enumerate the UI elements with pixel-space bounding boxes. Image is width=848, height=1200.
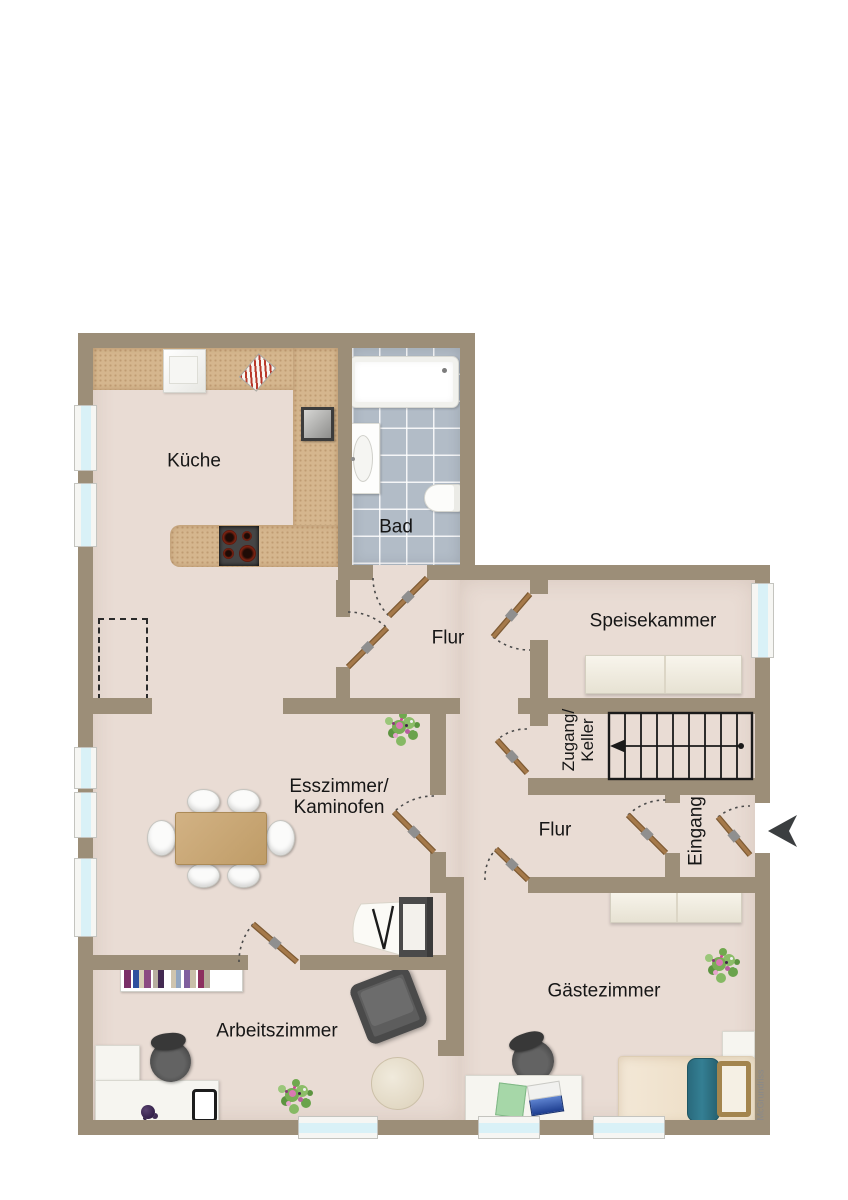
entrance-arrow-icon	[768, 815, 797, 847]
room-label-esszimmer-line2: Kaminofen	[294, 797, 385, 818]
wall	[530, 580, 548, 594]
cooktop	[219, 526, 259, 566]
wall	[93, 955, 248, 970]
window	[478, 1116, 540, 1139]
wall	[530, 712, 548, 726]
window	[751, 583, 774, 658]
wall	[78, 333, 475, 348]
room-label-gaestezimmer: Gästezimmer	[548, 981, 661, 1002]
window	[74, 792, 97, 838]
window	[74, 747, 97, 789]
floor-plan: Küche Bad Flur Speisekammer Zugang/ Kell…	[0, 0, 848, 1200]
wall	[338, 565, 373, 580]
wall	[665, 795, 680, 803]
wall	[438, 1040, 464, 1056]
room-label-esszimmer-line1: Esszimmer/	[289, 776, 388, 797]
room-label-flur-bottom: Flur	[539, 820, 572, 841]
room-label-bad: Bad	[379, 517, 413, 538]
burner	[239, 545, 256, 562]
dining-chair	[227, 789, 260, 814]
bed-pillow	[717, 1061, 751, 1117]
round-ottoman	[371, 1057, 424, 1110]
window	[74, 483, 97, 547]
toilet	[424, 484, 462, 512]
wall	[336, 580, 350, 617]
book-spines	[124, 970, 239, 988]
wall	[283, 698, 460, 714]
room-label-speisekammer: Speisekammer	[590, 611, 717, 632]
bathroom-sink	[348, 423, 380, 494]
laptop	[527, 1081, 564, 1117]
bathtub	[349, 356, 459, 408]
bed-blanket	[687, 1058, 720, 1122]
window	[593, 1116, 665, 1139]
wall	[427, 565, 475, 580]
dining-chair	[147, 820, 176, 856]
wall	[528, 877, 755, 893]
dining-chair	[227, 863, 260, 888]
room-label-flur-top: Flur	[432, 628, 465, 649]
room-label-zugang-line1: Zugang/	[559, 709, 578, 771]
dining-chair	[266, 820, 295, 856]
dining-table	[175, 812, 267, 865]
plant	[285, 1088, 298, 1101]
burner	[242, 531, 252, 541]
wall	[430, 714, 446, 795]
built-in-oven	[301, 407, 334, 441]
burner	[222, 530, 237, 545]
wall	[665, 853, 680, 878]
dashed-outline-area	[98, 618, 148, 700]
wall	[518, 698, 770, 714]
plant	[392, 720, 405, 733]
wall	[78, 1120, 770, 1135]
pantry-shelf	[585, 655, 742, 694]
window	[74, 858, 97, 937]
tablet	[192, 1089, 217, 1122]
wall	[300, 955, 464, 970]
kitchen-sink	[163, 349, 206, 393]
room-label-esszimmer: Esszimmer/ Kaminofen	[289, 776, 388, 818]
room-label-zugang-line2: Keller	[578, 718, 597, 761]
wall	[93, 698, 152, 714]
wardrobe	[610, 890, 742, 923]
room-label-zugang-keller: Zugang/ Keller	[559, 709, 597, 771]
plant	[712, 957, 725, 970]
room-label-kueche: Küche	[167, 451, 221, 472]
wall	[430, 852, 446, 877]
burner	[223, 548, 234, 559]
small-desk-plant	[141, 1105, 155, 1119]
wall	[460, 333, 475, 580]
room-label-arbeitszimmer: Arbeitszimmer	[216, 1021, 337, 1042]
wall	[338, 348, 352, 580]
watermark: McGrundriss	[751, 1069, 772, 1120]
wall	[460, 565, 770, 580]
window	[74, 405, 97, 471]
dining-chair	[187, 789, 220, 814]
folder	[495, 1082, 527, 1118]
window	[298, 1116, 378, 1139]
wall	[528, 778, 755, 795]
room-label-eingang: Eingang	[686, 796, 707, 866]
dining-chair	[187, 863, 220, 888]
nightstand	[722, 1031, 755, 1058]
